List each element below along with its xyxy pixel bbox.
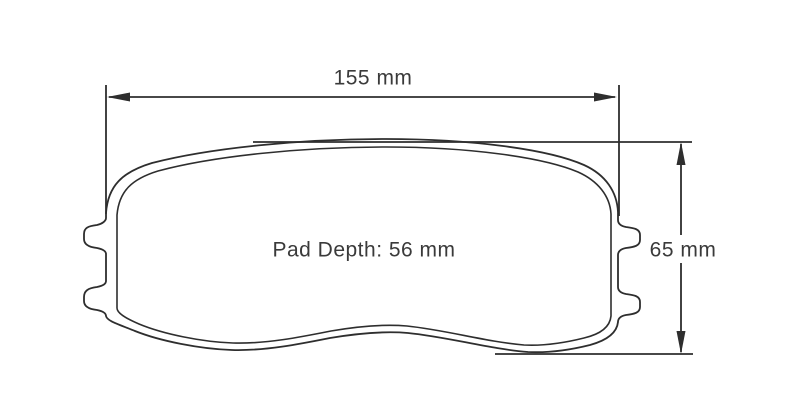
pad-depth-label: Pad Depth: 56 mm: [272, 240, 455, 261]
technical-drawing: [0, 0, 791, 418]
arrowhead-up: [677, 142, 686, 165]
brake-pad-dimension-diagram: 155 mm Pad Depth: 56 mm 65 mm: [0, 0, 791, 418]
arrowhead-right: [594, 93, 617, 102]
arrowhead-down: [677, 331, 686, 354]
width-dimension-label: 155 mm: [334, 68, 413, 89]
height-dimension-label: 65 mm: [649, 238, 718, 263]
arrowhead-left: [107, 93, 130, 102]
